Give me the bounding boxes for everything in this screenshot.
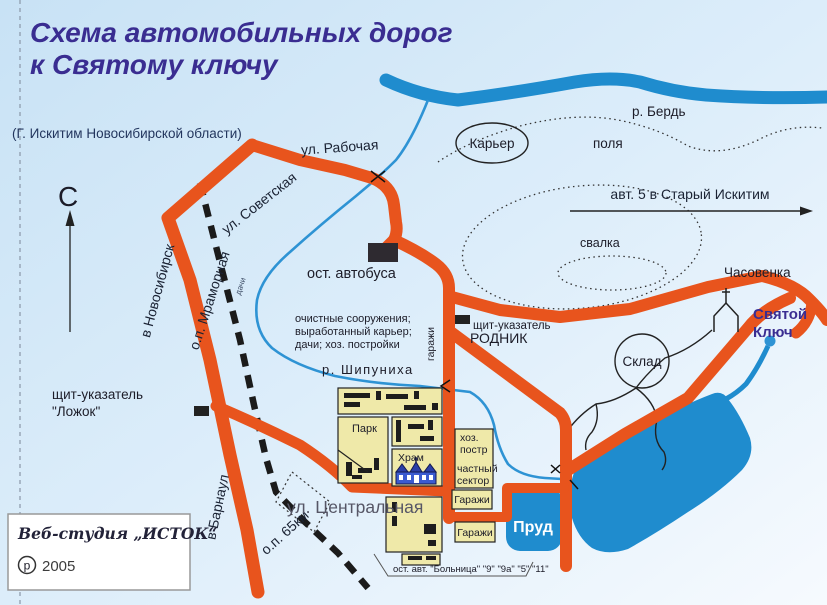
label-chastny-2: сектор <box>457 475 489 487</box>
label-sklad: Склад <box>622 354 661 369</box>
bus-stop-marker <box>368 243 398 262</box>
road-scheme-map: Схема автомобильных дорог к Святому ключ… <box>0 0 827 605</box>
label-shipunikha: р. Шипуниха <box>322 362 414 377</box>
sign-rodnik-name: РОДНИК <box>470 330 528 346</box>
label-garazhi-vertical: гаражи <box>425 327 437 361</box>
map-page: Схема автомобильных дорог к Святому ключ… <box>0 0 827 605</box>
north-letter: С <box>58 181 78 212</box>
page-title-line1: Схема автомобильных дорог <box>30 17 453 48</box>
label-ost-avtobusa: ост. автобуса <box>307 266 397 282</box>
lozhok-sign-marker <box>194 406 209 416</box>
label-ost-bolnitsa: ост. авт. "Больница" "9" "9а" "5" "11" <box>393 564 549 575</box>
label-park: Парк <box>352 423 377 435</box>
studio-logo-box: Веб-студия „ИСТОК“ р 2005 <box>8 514 218 590</box>
label-svyatoy-1: Святой <box>753 306 807 323</box>
label-svyatoy-2: Ключ <box>753 324 793 341</box>
block-north <box>338 388 442 414</box>
label-prud: Пруд <box>513 519 553 536</box>
label-garazhi-1: Гаражи <box>454 494 490 506</box>
rodnik-sign-marker <box>455 315 470 324</box>
label-khoz-2: постр <box>460 444 488 456</box>
label-chastny-1: частный <box>457 463 498 475</box>
label-avt5: авт. 5 в Старый Искитим <box>610 186 769 202</box>
label-chasovenka: Часовенка <box>724 265 791 280</box>
label-polya: поля <box>593 136 623 151</box>
sign-lozhok-label: щит-указатель <box>52 387 143 402</box>
note-ochistnye-1: очистные сооружения; <box>295 313 411 325</box>
note-ochistnye-2: выработанный карьер; <box>295 326 412 338</box>
label-svalka: свалка <box>580 236 620 250</box>
sign-lozhok-name: "Ложок" <box>52 404 100 419</box>
label-khram: Храм <box>398 452 424 464</box>
note-ochistnye-3: дачи; хоз. постройки <box>295 339 400 351</box>
p-mark-letter: р <box>24 559 31 573</box>
page-subtitle: (Г. Искитим Новосибирской области) <box>12 126 242 141</box>
label-garazhi-2: Гаражи <box>457 527 493 539</box>
logo-year: 2005 <box>42 558 75 575</box>
label-khoz-1: хоз. <box>460 432 479 444</box>
label-river-berd: р. Бердь <box>632 104 686 119</box>
label-karier: Карьер <box>470 136 515 151</box>
label-ul-centralnaya: ул. Центральная <box>287 497 423 517</box>
studio-name: Веб-студия „ИСТОК“ <box>17 524 218 543</box>
page-title-line2: к Святому ключу <box>30 49 279 80</box>
